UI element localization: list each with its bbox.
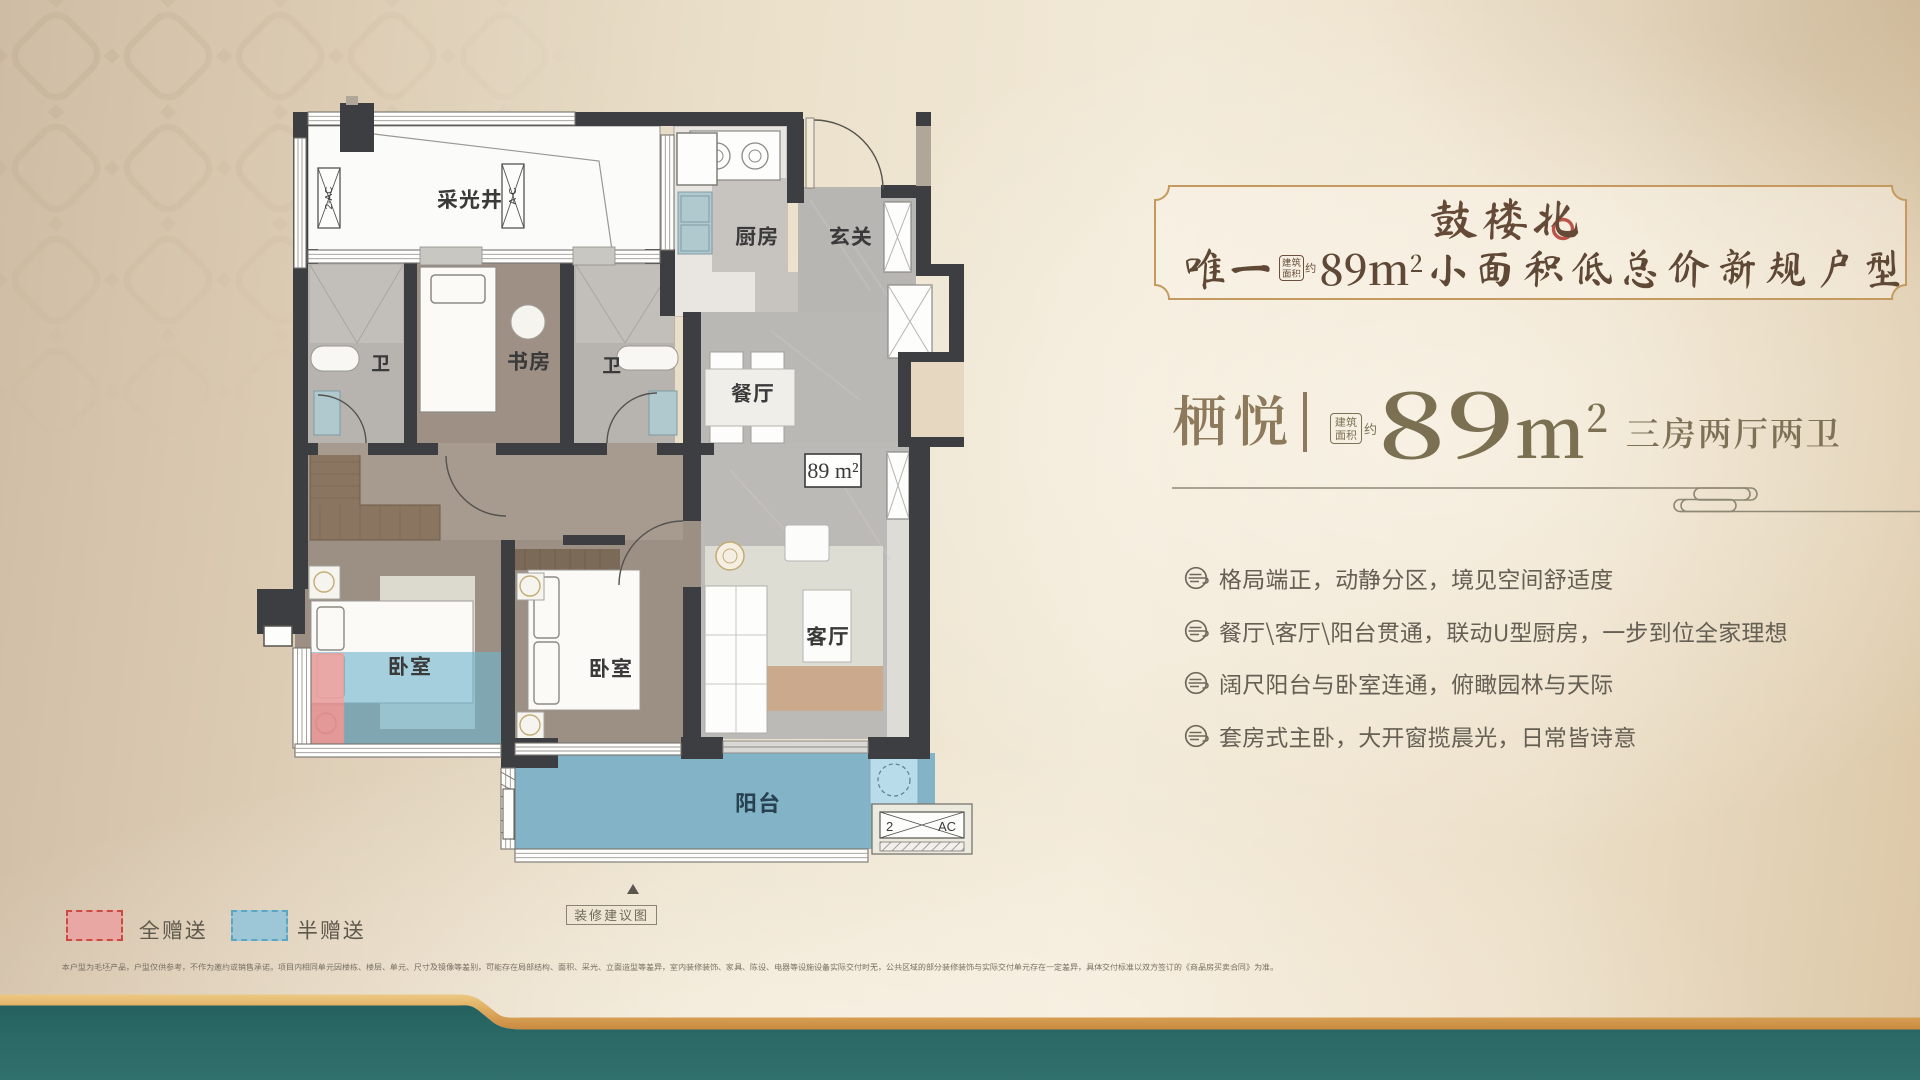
svg-text:2-AC: 2-AC	[324, 187, 335, 210]
svg-text:89 m²: 89 m²	[807, 458, 859, 483]
svg-text:A-C: A-C	[508, 187, 519, 204]
svg-text:卫: 卫	[371, 349, 391, 376]
svg-text:客厅: 客厅	[806, 621, 850, 651]
svg-text:卧室: 卧室	[589, 653, 633, 683]
svg-text:厨房: 厨房	[735, 221, 779, 251]
svg-text:餐厅: 餐厅	[731, 378, 775, 408]
svg-text:AC: AC	[938, 819, 956, 834]
svg-text:采光井: 采光井	[437, 184, 503, 214]
svg-text:2: 2	[886, 819, 893, 834]
svg-text:阳台: 阳台	[735, 786, 781, 818]
svg-text:卫: 卫	[602, 351, 622, 378]
svg-text:卧室: 卧室	[388, 651, 432, 681]
svg-text:玄关: 玄关	[829, 221, 873, 251]
svg-text:书房: 书房	[507, 346, 551, 376]
